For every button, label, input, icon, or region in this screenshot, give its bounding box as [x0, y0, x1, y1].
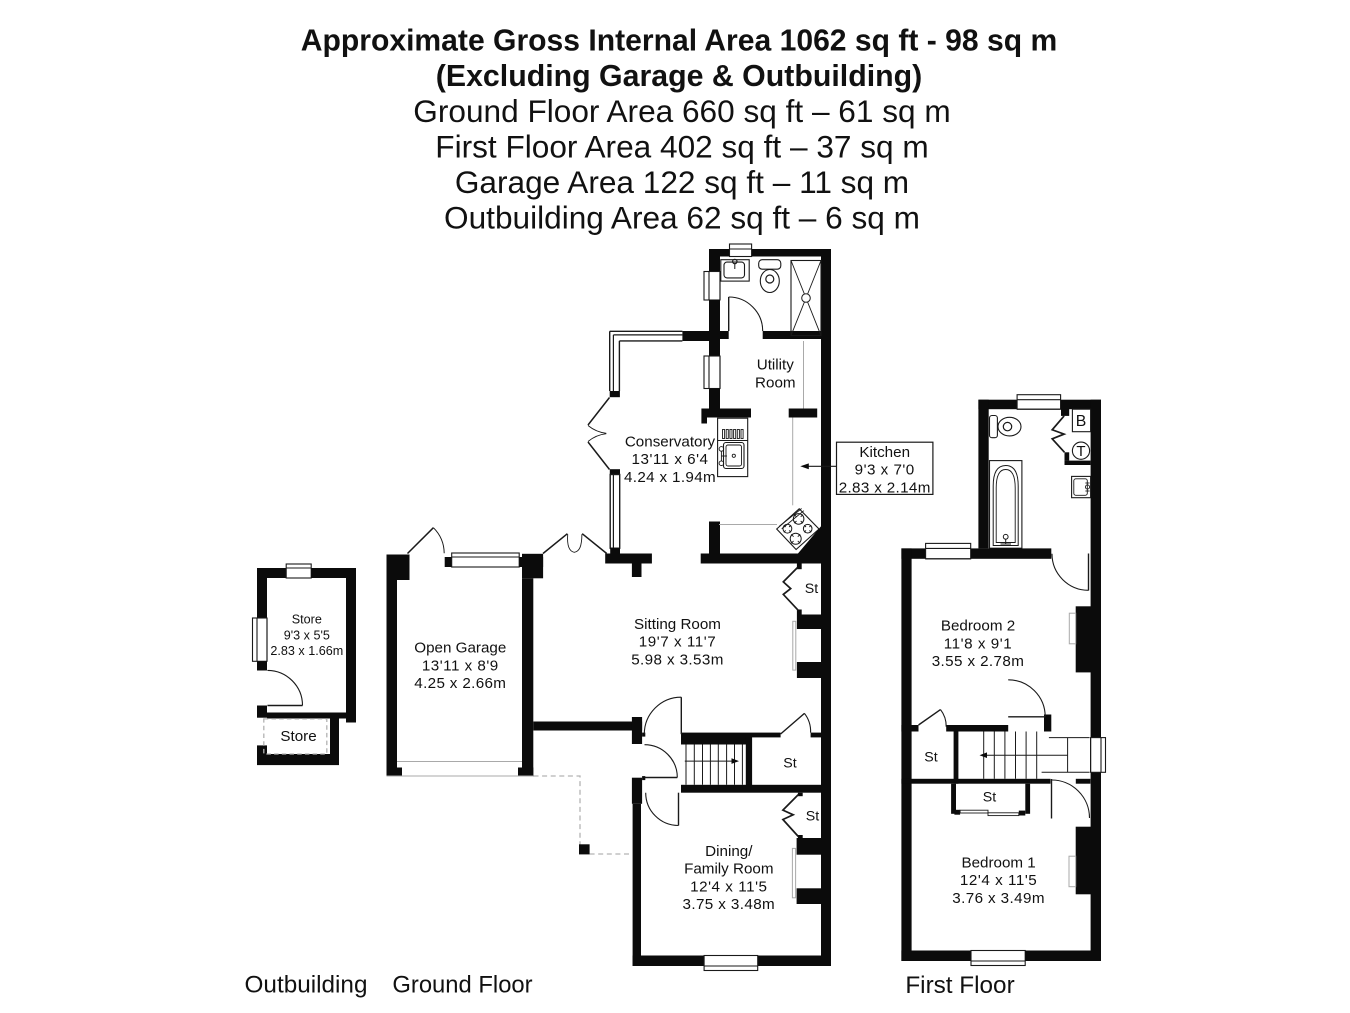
svg-text:Ground Floor: Ground Floor	[392, 972, 532, 999]
svg-text:St: St	[783, 755, 796, 771]
svg-text:19'7 x 11'7: 19'7 x 11'7	[639, 634, 716, 651]
svg-text:T: T	[1076, 443, 1085, 460]
svg-text:9'3 x 7'0: 9'3 x 7'0	[855, 462, 915, 479]
svg-text:St: St	[983, 790, 996, 806]
svg-text:Store: Store	[292, 613, 322, 627]
svg-text:Outbuilding Area 62 sq ft – 6: Outbuilding Area 62 sq ft – 6 sq m	[444, 200, 920, 236]
svg-text:St: St	[805, 581, 818, 597]
svg-text:4.25 x 2.66m: 4.25 x 2.66m	[414, 675, 506, 692]
svg-text:Room: Room	[755, 374, 796, 391]
svg-text:Kitchen: Kitchen	[859, 444, 910, 461]
svg-text:3.75 x 3.48m: 3.75 x 3.48m	[682, 896, 775, 913]
svg-text:2.83 x 1.66m: 2.83 x 1.66m	[270, 644, 343, 658]
svg-text:4.24 x 1.94m: 4.24 x 1.94m	[624, 469, 716, 486]
svg-text:9'3 x 5'5: 9'3 x 5'5	[284, 628, 330, 642]
svg-text:Store: Store	[280, 728, 316, 745]
svg-text:13'11 x 6'4: 13'11 x 6'4	[632, 451, 709, 468]
svg-text:12'4 x 11'5: 12'4 x 11'5	[690, 878, 767, 895]
svg-text:Bedroom 1: Bedroom 1	[961, 854, 1035, 871]
svg-text:3.55 x 2.78m: 3.55 x 2.78m	[932, 653, 1025, 670]
svg-text:3.76 x 3.49m: 3.76 x 3.49m	[952, 890, 1045, 907]
svg-text:St: St	[924, 750, 937, 766]
svg-text:2.83 x 2.14m: 2.83 x 2.14m	[839, 480, 931, 497]
svg-text:Conservatory: Conservatory	[625, 433, 716, 450]
svg-text:Dining/: Dining/	[705, 843, 753, 860]
svg-text:Family Room: Family Room	[684, 861, 773, 878]
svg-text:12'4 x 11'5: 12'4 x 11'5	[960, 872, 1037, 889]
svg-text:Ground Floor Area 660 sq ft –: Ground Floor Area 660 sq ft – 61 sq m	[413, 93, 950, 129]
svg-text:Open Garage: Open Garage	[414, 640, 506, 657]
svg-text:11'8 x 9'1: 11'8 x 9'1	[944, 635, 1012, 652]
svg-text:(Excluding Garage & Outbuildin: (Excluding Garage & Outbuilding)	[436, 60, 922, 93]
svg-text:Garage Area 122 sq ft – 11 sq: Garage Area 122 sq ft – 11 sq m	[455, 164, 909, 200]
svg-text:First Floor: First Floor	[905, 972, 1014, 999]
svg-text:5.98 x 3.53m: 5.98 x 3.53m	[631, 652, 724, 669]
svg-text:13'11 x 8'9: 13'11 x 8'9	[422, 657, 499, 674]
svg-text:Utility: Utility	[757, 357, 795, 374]
svg-text:Outbuilding: Outbuilding	[245, 972, 368, 999]
svg-text:First Floor Area 402 sq ft – 3: First Floor Area 402 sq ft – 37 sq m	[435, 128, 928, 164]
svg-text:Sitting Room: Sitting Room	[634, 616, 721, 633]
svg-text:Bedroom 2: Bedroom 2	[941, 618, 1015, 635]
svg-text:St: St	[806, 808, 819, 824]
svg-text:B: B	[1076, 413, 1087, 430]
svg-text:Approximate Gross Internal Are: Approximate Gross Internal Area 1062 sq …	[301, 25, 1058, 58]
